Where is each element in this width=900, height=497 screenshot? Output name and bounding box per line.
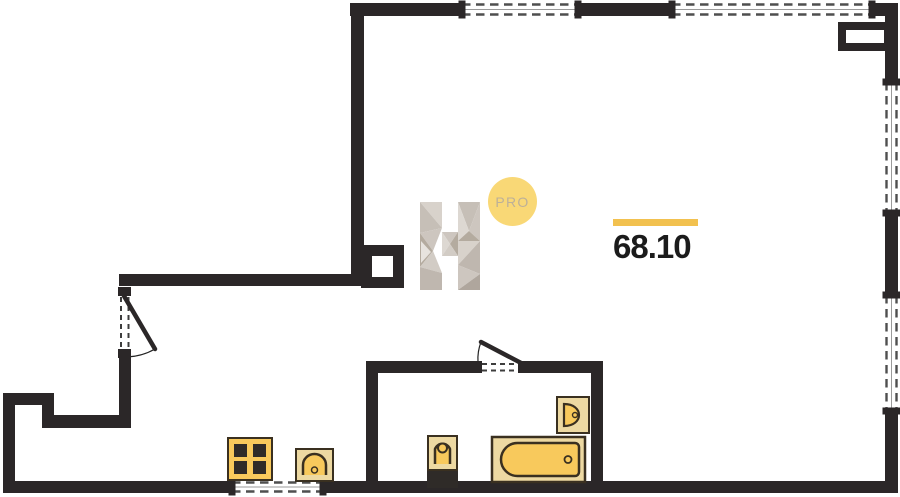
window-cap	[869, 1, 876, 19]
burner	[253, 444, 266, 457]
window-right-2	[883, 292, 900, 415]
burner	[234, 444, 247, 457]
window-cap	[669, 1, 676, 19]
door-jamb	[518, 361, 527, 373]
door-leaf	[124, 296, 155, 349]
upper-left-wall	[351, 3, 364, 286]
bathroom-east-wall	[591, 361, 603, 481]
brand-logo: PRO	[415, 175, 550, 295]
window-cap	[883, 210, 900, 217]
window-cap	[459, 1, 466, 19]
window-cap	[575, 1, 582, 19]
shaft-column-left	[367, 251, 399, 283]
right-wall	[885, 3, 898, 493]
area-annotation: 68.10	[613, 219, 703, 263]
door-leaf	[481, 342, 523, 364]
window-top-2	[669, 1, 876, 19]
toilet	[427, 436, 458, 488]
burner	[234, 461, 247, 474]
window-cap	[883, 408, 900, 415]
entry-wall	[119, 274, 365, 286]
window-top-1	[459, 1, 582, 19]
bathroom-door	[473, 342, 527, 373]
drain	[565, 456, 572, 463]
drain	[573, 413, 578, 418]
door-jamb	[473, 361, 482, 373]
door-jamb	[118, 349, 131, 358]
bathroom-west-wall	[366, 361, 378, 481]
bathtub	[492, 437, 585, 482]
window-cap	[883, 292, 900, 299]
area-underline	[613, 219, 698, 226]
stove	[228, 438, 272, 480]
bathroom-sink	[557, 397, 589, 433]
shaft-top-right	[842, 26, 888, 47]
logo-pro-badge: PRO	[488, 177, 537, 226]
toilet-flush	[438, 444, 447, 453]
door-jamb	[118, 287, 131, 296]
step-wall-top	[42, 415, 131, 428]
left-wall-lower	[3, 393, 15, 493]
drain	[312, 467, 318, 473]
area-value: 68.10	[613, 230, 703, 263]
logo-badge-text: PRO	[495, 194, 529, 210]
burner	[253, 461, 266, 474]
window-cap	[883, 79, 900, 86]
kitchen-sink	[296, 449, 333, 481]
floor-plan: PRO 68.10	[0, 0, 900, 497]
door-swing-arc	[478, 342, 481, 362]
window-cap	[229, 479, 236, 496]
entrance-door	[118, 287, 155, 358]
left-wall-middle	[119, 356, 131, 418]
bathroom-north-wall-left	[366, 361, 475, 373]
window-right-1	[883, 79, 900, 217]
